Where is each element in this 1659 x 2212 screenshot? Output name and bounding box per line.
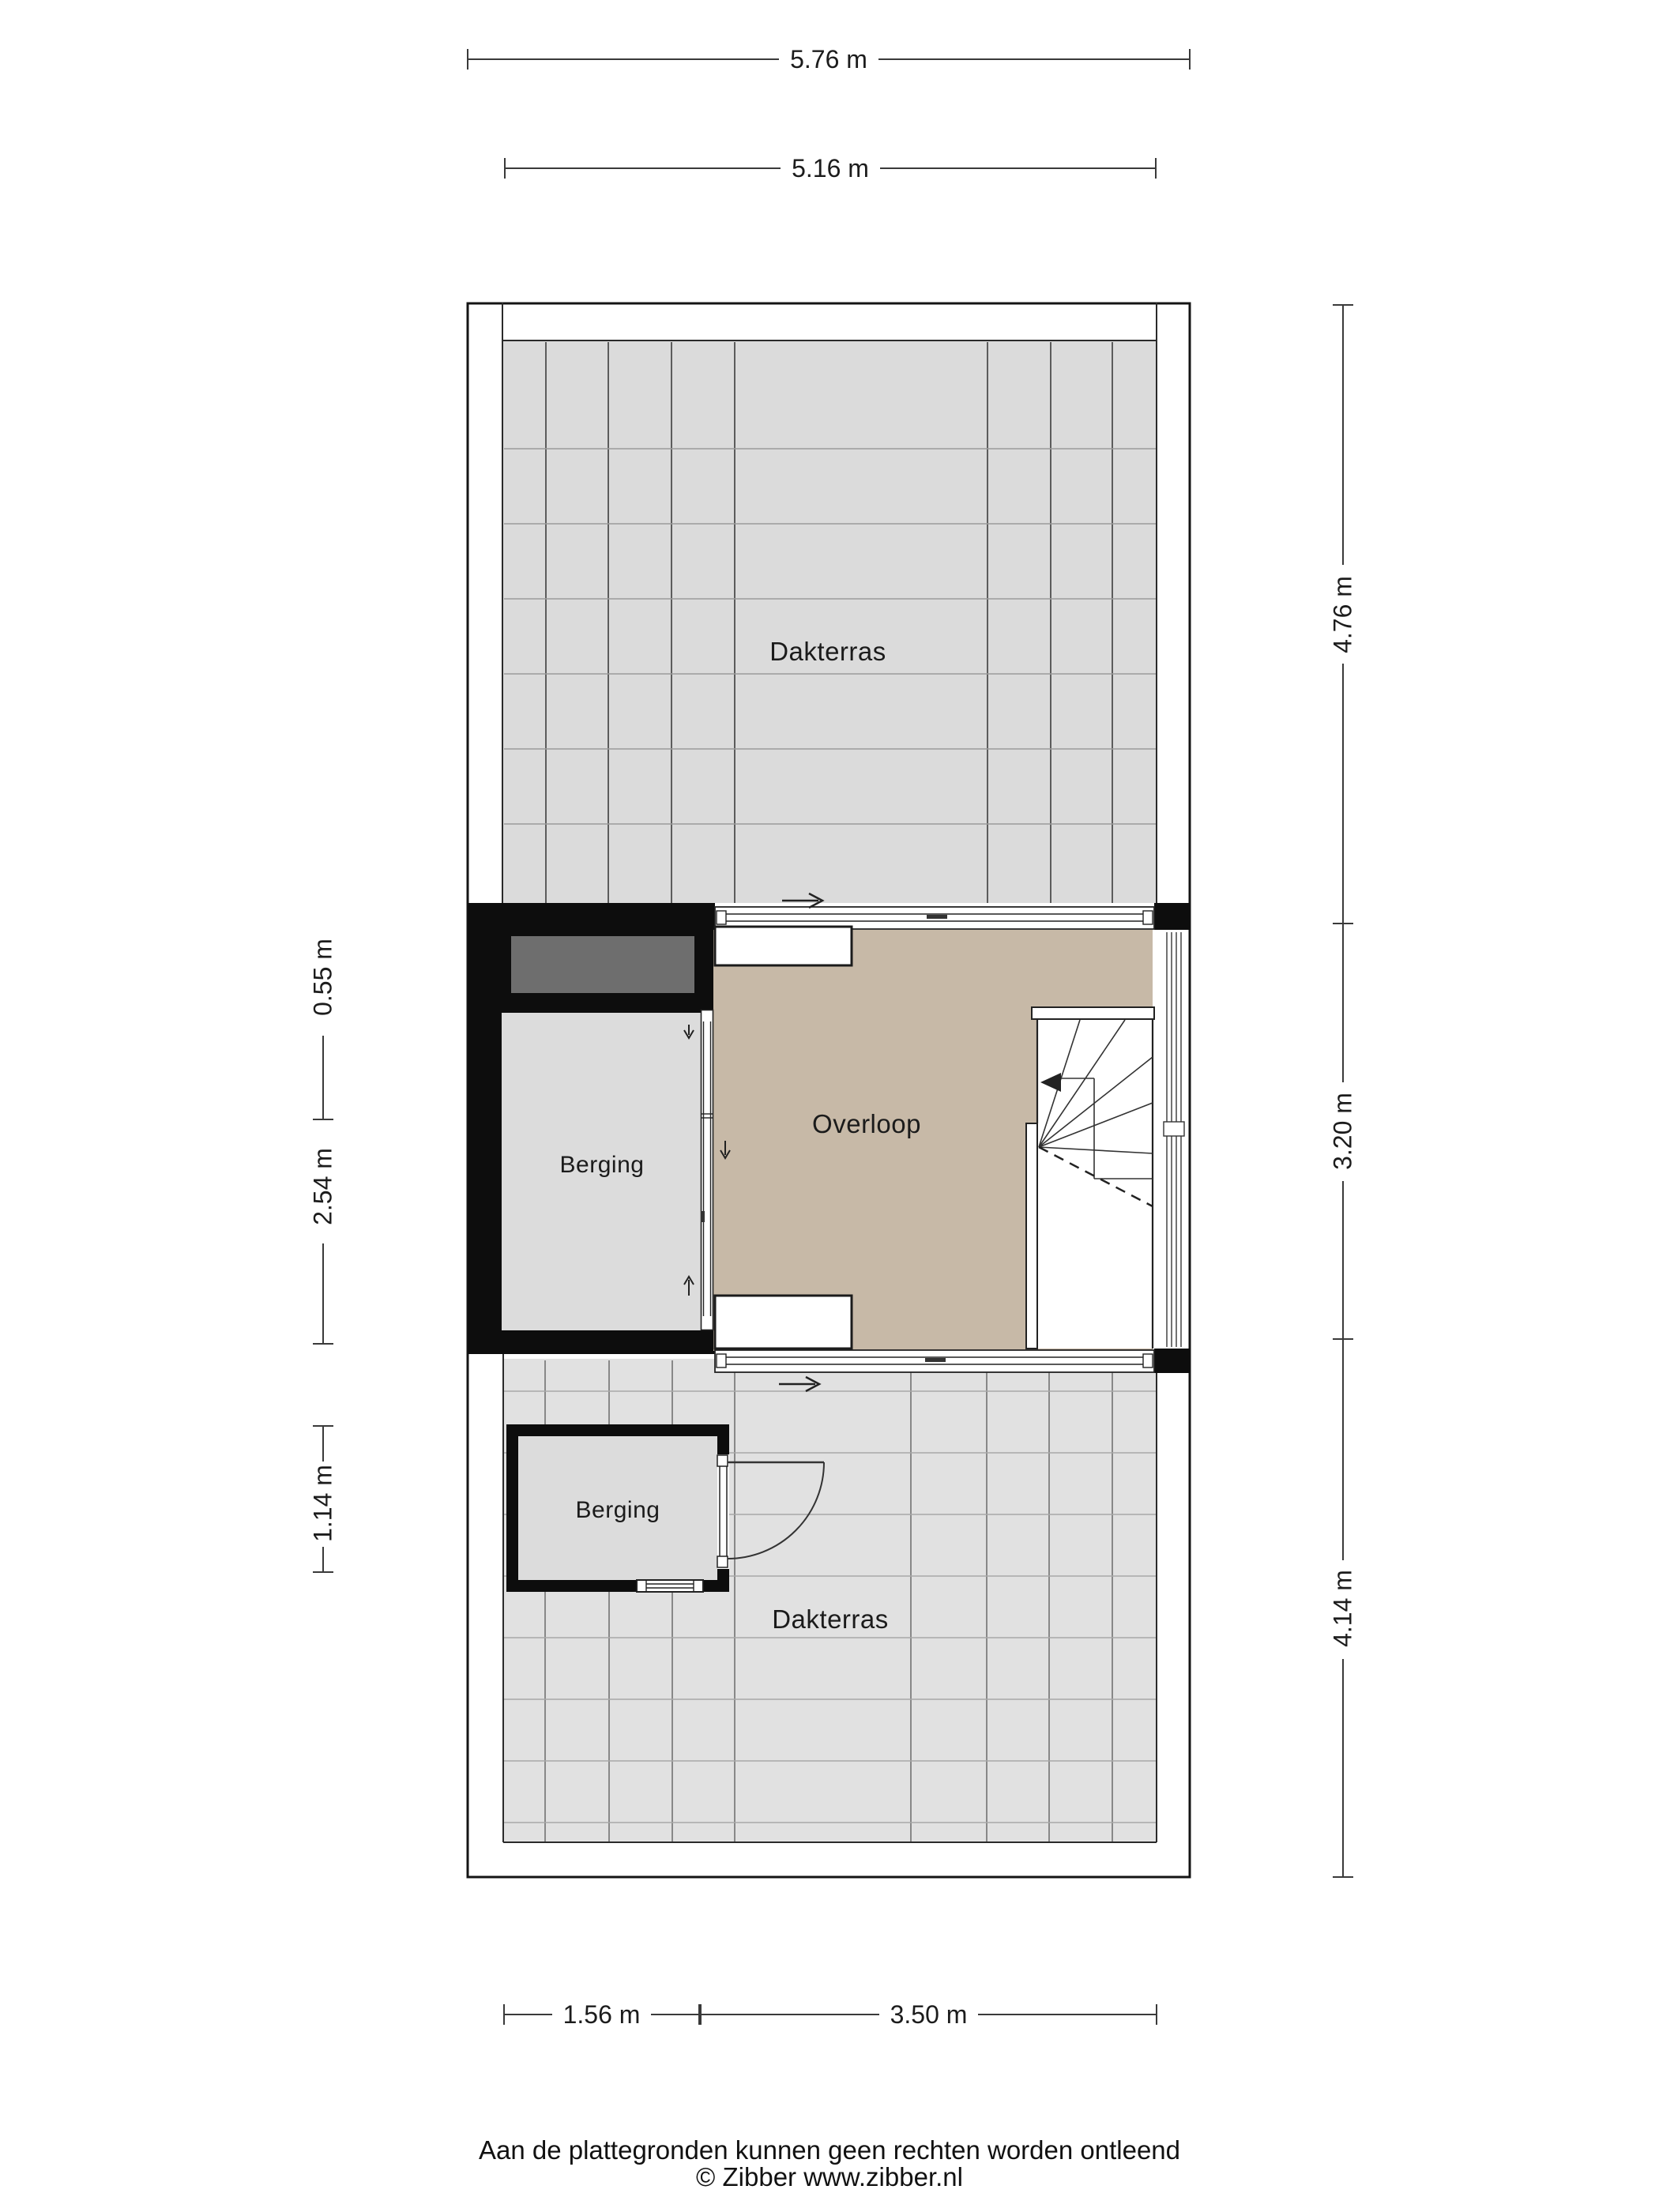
dim-label: 0.55 m	[309, 939, 338, 1016]
dim-tick	[700, 2004, 702, 2025]
dim-line	[978, 2014, 1157, 2015]
dim-label: 5.16 m	[781, 154, 880, 183]
wall-bottom-left	[468, 1330, 715, 1354]
stair-landing-edge	[1032, 1007, 1154, 1019]
dim-line	[503, 2014, 552, 2015]
arrow-right-icon	[779, 1377, 819, 1391]
dim-label: 3.20 m	[1329, 1093, 1358, 1170]
dim-line	[1342, 1659, 1344, 1878]
window-mullion	[1164, 1122, 1184, 1136]
dim-label: 4.14 m	[1329, 1570, 1358, 1647]
cupboard-bottom	[715, 1296, 852, 1349]
wall-corner-top-right	[1154, 903, 1190, 930]
room-label-dakterras-low: Dakterras	[772, 1604, 889, 1635]
dim-tick	[313, 1571, 333, 1573]
room-label-dakterras-top: Dakterras	[769, 637, 886, 667]
dim-label: 5.76 m	[779, 45, 878, 74]
door-overlap-tick	[927, 915, 947, 919]
dim-label: 4.76 m	[1329, 576, 1358, 653]
floorplan-page: Dakterras Berging Overloop Berging Dakte…	[0, 0, 1659, 2212]
stair-wall-stub	[1026, 1123, 1037, 1349]
dimension-bottom-left: 1.56 m	[503, 1999, 700, 2030]
dim-line	[878, 58, 1191, 60]
dim-line	[467, 58, 779, 60]
room-label-berging-low: Berging	[576, 1497, 660, 1524]
dim-line	[504, 167, 781, 169]
stairwell	[1037, 1019, 1153, 1349]
upper-roof-terrace	[503, 340, 1157, 903]
door-swing-icon	[728, 1462, 824, 1559]
stair-direction-arrow-icon	[1040, 1073, 1061, 1092]
dim-line	[322, 1243, 324, 1344]
footer-disclaimer: Aan de plattegronden kunnen geen rechten…	[0, 2135, 1659, 2165]
dim-tick	[467, 49, 468, 70]
berging-sliding-door	[701, 1010, 713, 1330]
footer-credit: © Zibber www.zibber.nl	[0, 2162, 1659, 2192]
overloop-floor	[713, 930, 1153, 1351]
passage-arrows	[779, 893, 822, 1391]
sliding-door-direction-arrows	[684, 1025, 730, 1296]
dim-line	[1342, 1339, 1344, 1560]
lower-berging-window	[637, 1580, 703, 1592]
bottom-sliding-door	[715, 1350, 1154, 1372]
dim-label: 3.50 m	[879, 2000, 979, 2030]
dim-line	[1342, 664, 1344, 924]
dim-label: 2.54 m	[309, 1148, 338, 1225]
dim-tick	[503, 2004, 505, 2025]
arrow-up-icon	[684, 1277, 694, 1296]
dim-tick	[1333, 1876, 1353, 1878]
dim-line	[322, 1036, 324, 1119]
staircase	[1026, 1007, 1154, 1349]
dim-tick	[1156, 2004, 1157, 2025]
lower-terrace-tile-lines-v	[545, 1360, 1112, 1841]
wall-corner-bottom-right	[1154, 1349, 1190, 1373]
plan-outer-wall	[468, 303, 1190, 1877]
cupboard-top	[715, 927, 852, 965]
upper-terrace-tile-lines-v	[546, 342, 1112, 903]
dim-tick	[504, 158, 506, 179]
stair-headroom-dashed-line	[1039, 1147, 1153, 1206]
arrow-right-icon	[782, 893, 822, 908]
wall-top-left-slab	[468, 903, 715, 1013]
floorplan-drawing	[0, 0, 1659, 2212]
dim-line	[700, 2014, 879, 2015]
dimension-top-inner: 5.16 m	[504, 152, 1157, 184]
arrow-down-icon	[720, 1141, 730, 1158]
dim-label: 1.14 m	[309, 1465, 338, 1542]
shaft-box	[511, 936, 694, 993]
stair-treads	[1039, 1020, 1153, 1179]
upper-terrace-floor	[503, 340, 1157, 903]
dimension-top-outer: 5.76 m	[467, 43, 1191, 75]
dim-line	[880, 167, 1157, 169]
lower-terrace-floor	[503, 1359, 1157, 1842]
dim-line	[322, 1426, 324, 1461]
dim-line	[1342, 924, 1344, 1082]
door-overlap-tick	[925, 1358, 946, 1362]
wall-left	[468, 903, 502, 1354]
arrow-down-icon	[684, 1025, 694, 1038]
top-sliding-door	[715, 907, 1154, 929]
room-label-overloop: Overloop	[812, 1109, 921, 1139]
dim-label: 1.56 m	[552, 2000, 652, 2030]
dim-line	[651, 2014, 700, 2015]
dim-tick	[1155, 158, 1157, 179]
dim-line	[1342, 305, 1344, 565]
dim-tick	[1189, 49, 1191, 70]
door-handle	[701, 1211, 705, 1222]
room-label-berging-mid: Berging	[560, 1152, 645, 1179]
dim-line	[1342, 1181, 1344, 1339]
lower-berging	[506, 1424, 824, 1592]
lower-roof-terrace	[503, 1359, 1157, 1842]
dim-tick	[313, 1343, 333, 1345]
door-opening	[717, 1454, 729, 1569]
dimension-bottom-right: 3.50 m	[700, 1999, 1157, 2030]
right-window	[1164, 932, 1184, 1347]
dim-line	[322, 1547, 324, 1572]
dim-tick	[313, 1119, 333, 1120]
